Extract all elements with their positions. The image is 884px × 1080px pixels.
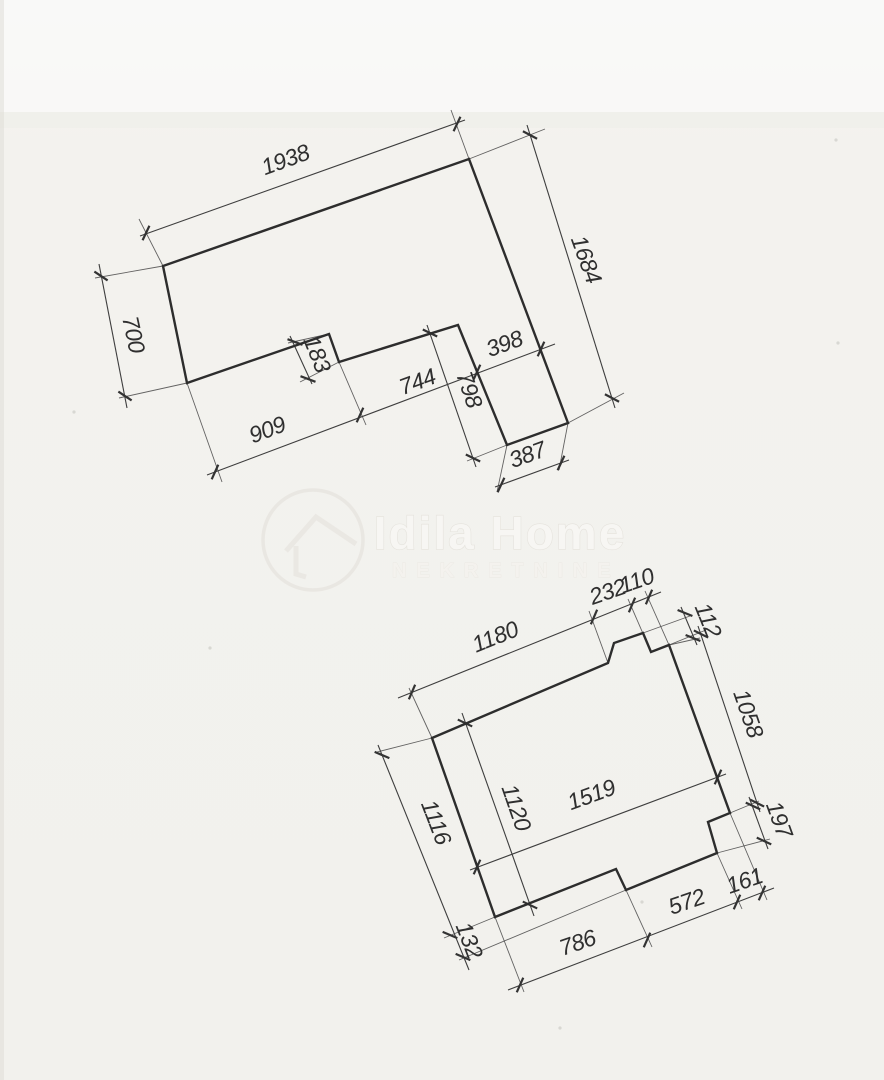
dimension-label: 700 — [117, 314, 150, 356]
house-wall-icon — [296, 546, 306, 577]
extension-line — [589, 611, 608, 663]
paper-speck — [72, 410, 75, 413]
extension-line — [95, 266, 163, 278]
outline-polygon — [432, 633, 730, 917]
dimension-label: 909 — [245, 411, 289, 449]
outline-polygon — [163, 159, 568, 445]
dimension-label: 798 — [451, 368, 488, 412]
dimension-tick — [375, 752, 390, 758]
paper-speck — [208, 646, 211, 649]
dimension-tick — [605, 394, 619, 401]
extension-line — [469, 129, 545, 159]
extension-line — [568, 393, 624, 423]
extension-line — [339, 362, 366, 425]
dimension-line — [398, 592, 661, 698]
dimension-label: 112 — [690, 599, 728, 642]
paper-band-edge — [0, 112, 884, 128]
dimension-label: 398 — [482, 325, 526, 362]
dimension-label: 744 — [395, 363, 439, 400]
extension-line — [377, 738, 432, 752]
dimension-label: 197 — [761, 797, 799, 842]
dimension-tick — [523, 131, 537, 138]
dimension-label: 132 — [451, 918, 489, 962]
scanned-floor-plan-page: Idila Home NEKRETNINE 193816847009097443… — [0, 0, 884, 1080]
dimension-line — [207, 344, 555, 475]
extension-line — [643, 616, 690, 633]
dimension-label: 572 — [665, 883, 709, 920]
dimension-label: 1684 — [566, 232, 607, 287]
dimension-label: 1938 — [258, 139, 314, 180]
dimension-label: 1519 — [564, 774, 620, 815]
figure-lower-plot-outline: 1180232110112105819715191120111613278657… — [375, 562, 799, 992]
extension-line — [139, 219, 163, 266]
watermark-title: Idila Home — [374, 507, 627, 559]
dimension-label: 1116 — [416, 796, 457, 849]
extension-line — [409, 688, 432, 738]
extension-line — [119, 383, 187, 398]
paper-speck — [834, 138, 837, 141]
paper-top-band — [0, 0, 884, 112]
paper-speck — [640, 900, 643, 903]
plan-drawing: Idila Home NEKRETNINE 193816847009097443… — [0, 0, 884, 1080]
dimension-label: 786 — [556, 924, 600, 961]
scan-left-edge — [0, 0, 4, 1080]
watermark: Idila Home NEKRETNINE — [263, 490, 626, 590]
extension-line — [495, 917, 524, 992]
dimension-tick — [212, 465, 219, 480]
watermark-subtitle: NEKRETNINE — [392, 559, 620, 582]
paper-specks — [72, 138, 839, 1029]
figure-upper-plot-outline: 19381684700909744398183798387 — [94, 110, 624, 492]
paper-speck — [558, 1026, 561, 1029]
dimension-label: 1058 — [728, 686, 769, 742]
dimension-tick — [646, 590, 652, 605]
dimension-label: 387 — [505, 435, 550, 473]
paper-speck — [836, 341, 839, 344]
dimension-line — [508, 888, 774, 990]
dimension-tick — [591, 610, 597, 625]
house-roof-icon — [286, 517, 356, 551]
